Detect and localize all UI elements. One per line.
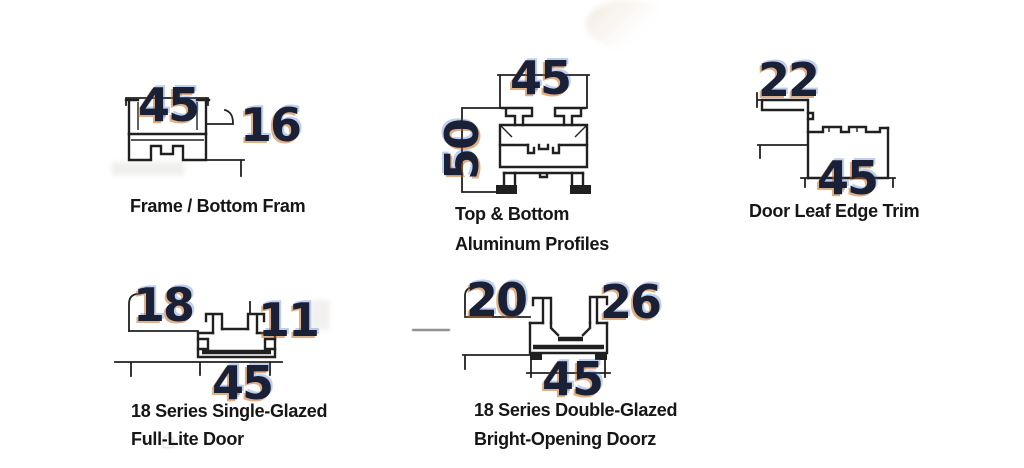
caption-line: 18 Series Double-Glazed	[474, 396, 677, 425]
dim-top-width: 45	[138, 82, 198, 128]
diagram-top-bottom-aluminum-profiles: 45 50 Top & Bottom Aluminum Profiles	[413, 50, 668, 265]
dim-right-height: 16	[240, 102, 300, 148]
dim-left-height: 18	[133, 282, 193, 328]
leader-line-artifact	[412, 329, 450, 331]
dim-bottom-width: 45	[817, 155, 877, 201]
diagram-caption: Top & Bottom Aluminum Profiles	[455, 199, 609, 259]
diagram-door-leaf-edge-trim: 22 45 Door Leaf Edge Trim	[745, 55, 950, 230]
diagram-caption: Frame / Bottom Fram	[130, 196, 305, 217]
caption-line: Full-Lite Door	[131, 425, 327, 453]
dim-top-width: 22	[758, 57, 818, 103]
watermark-streak	[586, 0, 672, 48]
dim-left-width: 20	[466, 277, 526, 323]
caption-line: Aluminum Profiles	[455, 229, 609, 259]
diagram-double-glazed-bright-opening-door: 20 26 45 18 Series Double-Glazed Bright-…	[448, 275, 668, 460]
dim-top-width: 45	[510, 55, 570, 101]
diagram-frame-bottom-frame: 45 16 Frame / Bottom Fram	[110, 80, 345, 230]
caption-line: 18 Series Single-Glazed	[131, 397, 327, 425]
caption-line: Bright-Opening Doorz	[474, 425, 677, 454]
diagram-caption: 18 Series Double-Glazed Bright-Opening D…	[474, 396, 677, 454]
dim-channel-width: 11	[258, 297, 318, 343]
diagram-caption: Door Leaf Edge Trim	[749, 201, 919, 222]
technical-diagram-sheet: 45 16 Frame / Bottom Fram	[0, 0, 1024, 468]
dim-right-width: 26	[600, 279, 660, 325]
diagram-single-glazed-full-lite-door: 18 11 45 18 Series Single-Glazed Full-Li…	[115, 278, 330, 458]
caption-line: Top & Bottom	[455, 199, 609, 229]
diagram-caption: 18 Series Single-Glazed Full-Lite Door	[131, 397, 327, 453]
dim-left-height: 50	[439, 108, 485, 192]
